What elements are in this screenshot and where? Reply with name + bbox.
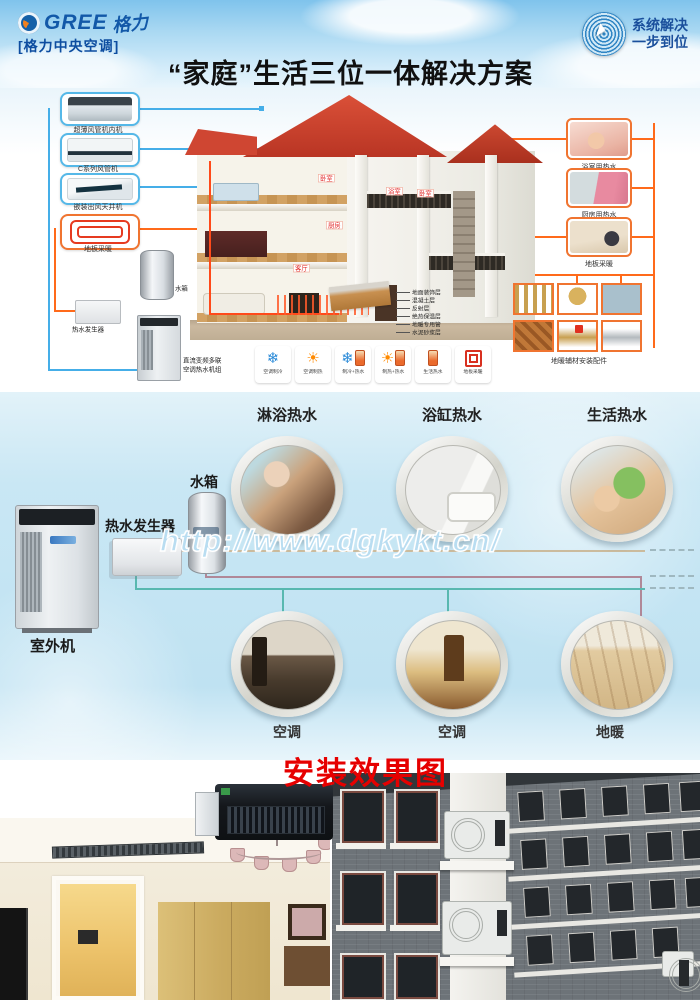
floor-slab — [197, 261, 347, 269]
dashed-line — [650, 587, 694, 589]
outdoor-unit-label-1: 直流变频多联 — [183, 356, 221, 365]
leader-line — [396, 300, 410, 301]
usage-caption: 地板采暖 — [552, 259, 646, 269]
tank-label: 水箱 — [190, 472, 218, 492]
building-installation-photo — [332, 773, 700, 1000]
window — [523, 886, 551, 918]
outdoor-ac-unit — [444, 811, 510, 859]
coil-icon — [465, 350, 482, 367]
hot-water-section: 淋浴热水 浴缸热水 生活热水 室外机 热水发生器 水箱 http://www.d… — [0, 392, 700, 760]
unit-caption: 地板采暖 — [40, 244, 156, 254]
heating-riser-pipe — [209, 161, 211, 315]
bed — [213, 183, 259, 201]
cloud — [300, 0, 520, 46]
leader-line — [396, 316, 410, 317]
pipe-line — [48, 108, 50, 370]
heating-pipe-line — [54, 310, 76, 312]
water-heater-icon — [355, 350, 365, 366]
unit-card-cassette — [60, 173, 140, 205]
unit-feet — [22, 628, 92, 633]
usage-card-kitchen — [566, 168, 632, 208]
heating-pipe-line — [54, 228, 56, 312]
washing-photo — [570, 445, 666, 535]
solution-diagram: 超薄风管机内机 C系列风管机 嵌装出风天井机 地板采暖 水箱 热水发生器 直流变… — [0, 88, 700, 392]
room-label: 厨房 — [326, 221, 343, 229]
outdoor-unit-label: 室外机 — [30, 635, 75, 656]
pipe-line — [48, 369, 138, 371]
window — [559, 788, 587, 820]
circle-label: 生活热水 — [557, 404, 677, 425]
heating-pipe-line — [630, 236, 655, 238]
window — [520, 838, 548, 870]
sun-icon: ☀ — [306, 351, 319, 366]
part-filter-valve — [557, 283, 598, 315]
page-title: “家庭”生活三位一体解决方案 — [168, 52, 533, 88]
leader-line — [396, 308, 410, 309]
window — [394, 953, 440, 1000]
slogan-line1: 系统解决 — [632, 17, 688, 34]
ground-slab — [190, 320, 540, 340]
mode-label: 制冷+热水 — [342, 368, 364, 375]
circle-floor-heating — [561, 611, 673, 717]
slogan-text: 系统解决 一步到位 — [632, 17, 688, 51]
mode-label: 制热+热水 — [382, 368, 404, 375]
floor-layer-label: 绝热保温层 — [412, 313, 441, 321]
heating-loop-line — [640, 576, 642, 616]
shower-photo — [240, 445, 336, 535]
parts-caption: 地暖辅材安装配件 — [508, 356, 650, 366]
window — [610, 929, 638, 961]
floor-layer-callout: 混凝土层 — [396, 297, 444, 304]
window-sill — [390, 843, 440, 849]
floor-coil-image — [70, 220, 130, 244]
floor-slab — [197, 203, 347, 211]
ledge — [440, 957, 514, 966]
floor-layer-label: 混凝土层 — [412, 297, 435, 305]
mode-tile-heating: ☀ 空调制热 — [295, 346, 331, 383]
floor-layer-callout: 地面装饰层 — [396, 289, 452, 296]
room-label: 客厅 — [293, 264, 310, 272]
room-label: 卧室 — [318, 174, 335, 182]
water-heater-icon — [395, 350, 405, 366]
circle-label: 浴缸热水 — [392, 404, 512, 425]
part-fittings — [601, 320, 642, 352]
window — [340, 953, 386, 1000]
outdoor-ac-unit — [442, 901, 512, 955]
lamp-shade — [306, 850, 321, 864]
sofa — [203, 293, 265, 315]
chilled-water-line — [135, 588, 645, 590]
lamp-shade — [230, 848, 245, 862]
mode-tile-hotwater: 生活热水 — [415, 346, 451, 383]
floor-layer-callout: 地暖专用管 — [396, 321, 452, 328]
floor-layer-label: 地面装饰层 — [412, 289, 441, 297]
living-room-photo — [240, 620, 336, 710]
window — [340, 871, 386, 927]
floor-layer-callout: 反射层 — [396, 305, 436, 312]
wardrobe — [158, 902, 270, 1000]
unit-card-duct — [60, 133, 140, 167]
water-heater-icon — [428, 350, 438, 366]
family-floor-photo — [570, 221, 628, 253]
window — [394, 871, 440, 927]
window — [340, 789, 386, 845]
window — [679, 781, 700, 813]
snowflake-icon: ❄ — [341, 351, 354, 366]
outdoor-unit — [15, 505, 99, 629]
hot-water-generator-small — [75, 300, 121, 324]
mode-tile-heating-hotwater: ☀ 制热+热水 — [375, 346, 411, 383]
snowflake-icon: ❄ — [267, 351, 280, 366]
pillar — [485, 155, 497, 317]
brand-name: GREE — [44, 11, 108, 35]
hallway — [60, 884, 136, 996]
hand-pointer-icon — [596, 23, 607, 38]
living-room-photo-2 — [405, 620, 501, 710]
usage-card-family — [566, 217, 632, 257]
window — [607, 881, 635, 913]
part-manifold — [513, 283, 554, 315]
lamp-shade — [254, 856, 269, 870]
circle-label: 地暖 — [550, 722, 670, 742]
part-pipe-clips — [601, 283, 642, 315]
duct-unit-end-cap — [195, 792, 219, 836]
heating-pipe-line — [620, 274, 622, 283]
outdoor-ac-unit-small — [662, 951, 694, 977]
leader-line — [396, 324, 410, 325]
lamp-shade — [282, 858, 297, 872]
circle-label: 淋浴热水 — [227, 404, 347, 425]
heating-pipe-line — [630, 138, 655, 140]
mode-tile-floorheating: 地板采暖 — [455, 346, 491, 383]
heating-pipe-line — [576, 274, 578, 283]
header: GREE 格力 [格力中央空调] “家庭”生活三位一体解决方案 系统解决 一步到… — [0, 0, 700, 88]
duct-unit-grille — [227, 806, 325, 834]
mode-tile-cooling-hotwater: ❄ 制冷+热水 — [335, 346, 371, 383]
installation-gallery: 安装效果图 — [0, 760, 700, 1000]
window — [565, 884, 593, 916]
kitchen-photo — [570, 172, 628, 204]
duct-unit-image — [67, 138, 133, 162]
gree-logo: GREE 格力 — [18, 10, 148, 36]
cassette-unit-image — [67, 178, 133, 200]
circle-ac-2 — [396, 611, 508, 717]
doorway — [52, 876, 144, 1000]
sun-icon: ☀ — [381, 351, 394, 366]
unit-caption: 嵌装出风天井机 — [40, 202, 156, 212]
window — [649, 879, 677, 911]
floor-layer-callout: 水泥砂浆层 — [396, 329, 452, 336]
balcony-railing — [367, 191, 451, 208]
window — [526, 934, 554, 966]
dashed-line — [650, 575, 694, 577]
water-tank-small — [140, 250, 174, 300]
floor-layer-callout: 绝热保温层 — [396, 313, 452, 320]
window-sill — [336, 843, 386, 849]
mode-label: 地板采暖 — [463, 368, 482, 375]
stone-pillar — [453, 191, 475, 297]
dashed-line — [650, 549, 694, 551]
gree-badge — [50, 536, 76, 544]
watermark-url: http://www.dgkykt.cn/ — [160, 523, 600, 559]
brand-script-name: 格力 — [110, 8, 149, 38]
window — [562, 836, 590, 868]
main-roof — [243, 95, 447, 157]
wood-floor-photo — [570, 620, 666, 710]
window-sill — [336, 925, 386, 931]
gallery-title: 安装效果图 — [283, 748, 448, 793]
circle-ac-1 — [231, 611, 343, 717]
floor-layer-label: 水泥砂浆层 — [412, 329, 441, 337]
window — [601, 785, 629, 817]
window — [643, 783, 671, 815]
slogan-badge: 系统解决 一步到位 — [582, 12, 688, 56]
window — [394, 789, 440, 845]
left-roof — [185, 129, 257, 155]
mode-label: 生活热水 — [423, 368, 442, 375]
window — [604, 833, 632, 865]
window — [682, 829, 700, 861]
ledge — [440, 861, 514, 870]
mode-icon-strip: ❄ 空调制冷 ☀ 空调制热 ❄ 制冷+热水 ☀ 制热+热水 生活热水 地板采暖 — [255, 346, 491, 383]
poster: GREE 格力 [格力中央空调] “家庭”生活三位一体解决方案 系统解决 一步到… — [0, 0, 700, 1000]
room-label: 卧室 — [417, 189, 434, 197]
window — [685, 876, 700, 908]
dresser — [284, 946, 330, 986]
brand-subtitle: [格力中央空调] — [18, 36, 119, 56]
outdoor-unit-label-2: 空调热水机组 — [183, 365, 221, 374]
window — [568, 932, 596, 964]
part-ball-valve — [557, 320, 598, 352]
mode-label: 空调制热 — [303, 368, 322, 375]
floor-layer-label: 地暖专用管 — [412, 321, 441, 329]
baby-bath-photo — [570, 122, 628, 156]
tv-panel — [0, 908, 28, 1000]
heating-loop-line — [205, 576, 642, 578]
slogan-line2: 一步到位 — [632, 34, 688, 51]
spiral-disc-icon — [582, 12, 626, 56]
window — [517, 791, 545, 823]
mode-label: 空调制冷 — [263, 368, 282, 375]
bathtub-photo — [405, 445, 501, 535]
heating-pipe-line — [630, 187, 655, 189]
window — [646, 831, 674, 863]
energy-label — [221, 788, 230, 795]
usage-card-bath — [566, 118, 632, 160]
circle-label: 空调 — [392, 722, 512, 742]
leader-line — [396, 332, 410, 333]
circle-label: 空调 — [227, 722, 347, 742]
generator-label: 热水发生器 — [72, 325, 104, 334]
mode-tile-cooling: ❄ 空调制冷 — [255, 346, 291, 383]
window-sill — [390, 925, 440, 931]
kitchen-cabinets — [205, 231, 267, 257]
part-copper-pipe — [513, 320, 554, 352]
unit-card-slim-duct — [60, 92, 140, 126]
leader-line — [396, 292, 410, 293]
outdoor-unit-small — [137, 315, 181, 381]
gree-logo-icon — [18, 12, 40, 34]
floor-layer-label: 反射层 — [412, 305, 429, 313]
room-label: 浴室 — [386, 187, 403, 195]
mirror-frame — [288, 904, 326, 940]
slim-duct-unit-image — [68, 97, 132, 121]
